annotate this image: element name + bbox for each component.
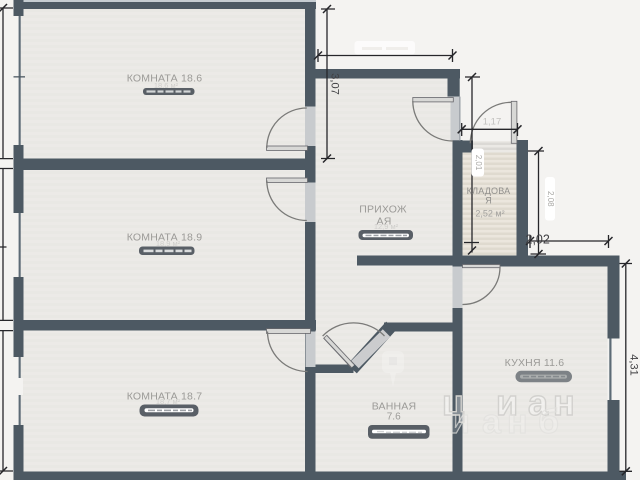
svg-text:б: б	[538, 403, 559, 441]
svg-text:н: н	[507, 403, 528, 441]
svg-text:а: а	[482, 403, 502, 441]
svg-text:7.6: 7.6	[387, 412, 401, 423]
svg-text:ПРИХОЖ: ПРИХОЖ	[359, 204, 407, 216]
svg-text:2,52 м²: 2,52 м²	[475, 209, 504, 219]
svg-text:2,02: 2,02	[526, 233, 550, 247]
svg-text:2,01: 2,01	[474, 155, 483, 171]
svg-text:КУХНЯ 11.6: КУХНЯ 11.6	[505, 357, 565, 369]
svg-text:2,08: 2,08	[546, 191, 555, 207]
svg-text:и: и	[449, 403, 470, 441]
svg-text:КЛАДОВА: КЛАДОВА	[467, 186, 511, 196]
svg-text:Я: Я	[485, 196, 492, 206]
svg-text:1,17: 1,17	[483, 117, 502, 128]
svg-text:4,31: 4,31	[628, 354, 640, 375]
svg-text:3,07: 3,07	[329, 73, 341, 94]
svg-text:12,9 м²: 12,9 м²	[374, 222, 399, 231]
